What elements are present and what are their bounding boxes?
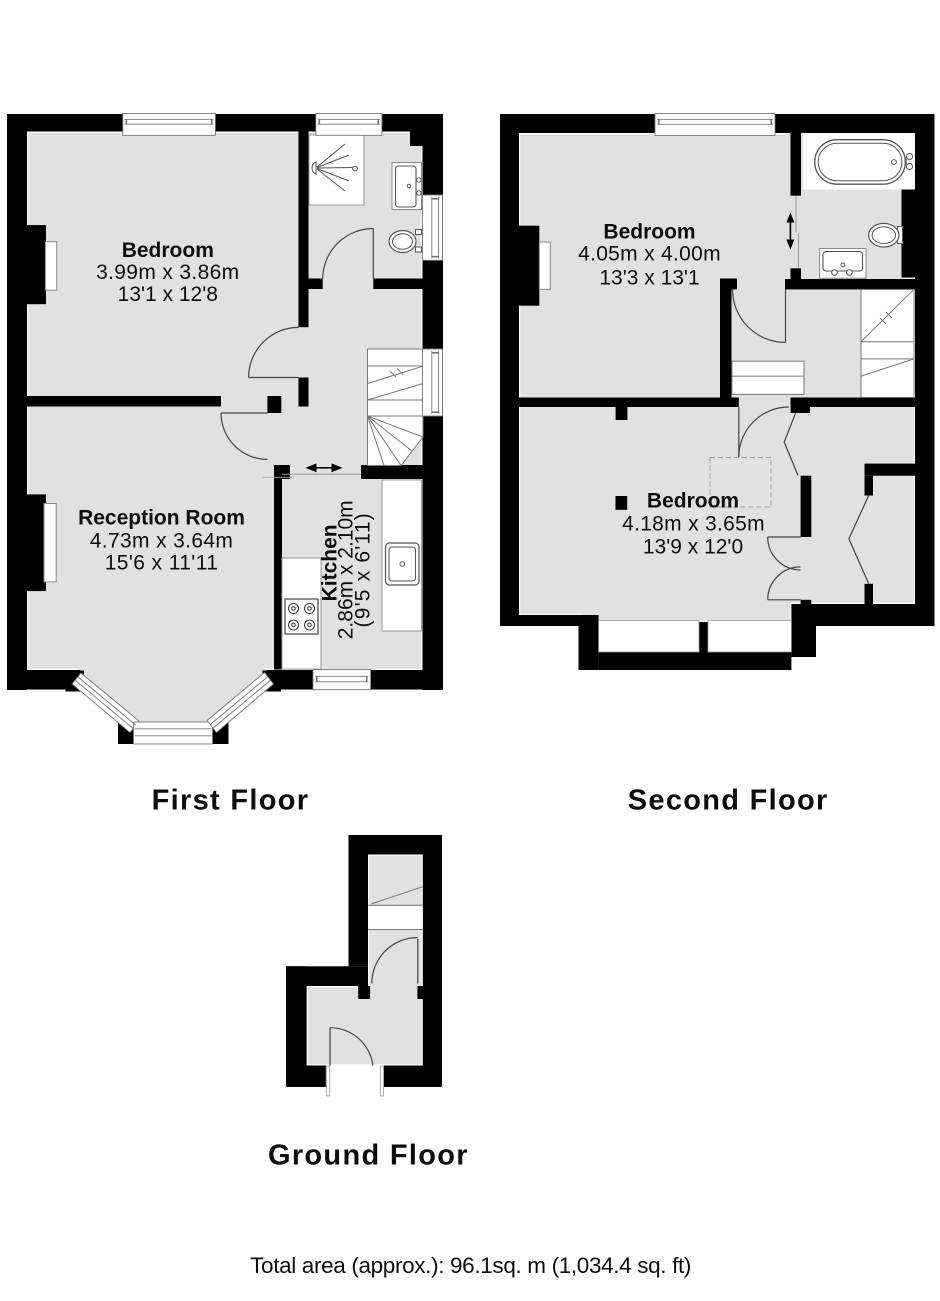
svg-text:3.99m x 3.86m: 3.99m x 3.86m bbox=[96, 261, 239, 284]
svg-text:4.73m x 3.64m: 4.73m x 3.64m bbox=[90, 530, 233, 553]
svg-text:4.18m x 3.65m: 4.18m x 3.65m bbox=[622, 513, 765, 536]
svg-text:Second Floor: Second Floor bbox=[628, 785, 829, 817]
svg-text:Bedroom: Bedroom bbox=[647, 490, 739, 513]
svg-text:Bedroom: Bedroom bbox=[603, 221, 695, 244]
svg-text:Ground Floor: Ground Floor bbox=[268, 1140, 469, 1172]
svg-text:Total area (approx.): 96.1sq.: Total area (approx.): 96.1sq. m (1,034.4… bbox=[250, 1253, 691, 1278]
svg-text:15'6 x 11'11: 15'6 x 11'11 bbox=[105, 552, 219, 575]
svg-text:13'3 x 13'1: 13'3 x 13'1 bbox=[599, 267, 699, 290]
svg-text:(9'5 x 6'11): (9'5 x 6'11) bbox=[352, 512, 375, 627]
svg-text:13'9 x 12'0: 13'9 x 12'0 bbox=[643, 535, 743, 558]
svg-text:First Floor: First Floor bbox=[152, 784, 310, 816]
svg-text:Reception Room: Reception Room bbox=[78, 506, 245, 529]
svg-text:4.05m x 4.00m: 4.05m x 4.00m bbox=[578, 243, 721, 266]
svg-text:13'1 x 12'8: 13'1 x 12'8 bbox=[118, 283, 218, 306]
svg-text:Bedroom: Bedroom bbox=[122, 239, 214, 262]
